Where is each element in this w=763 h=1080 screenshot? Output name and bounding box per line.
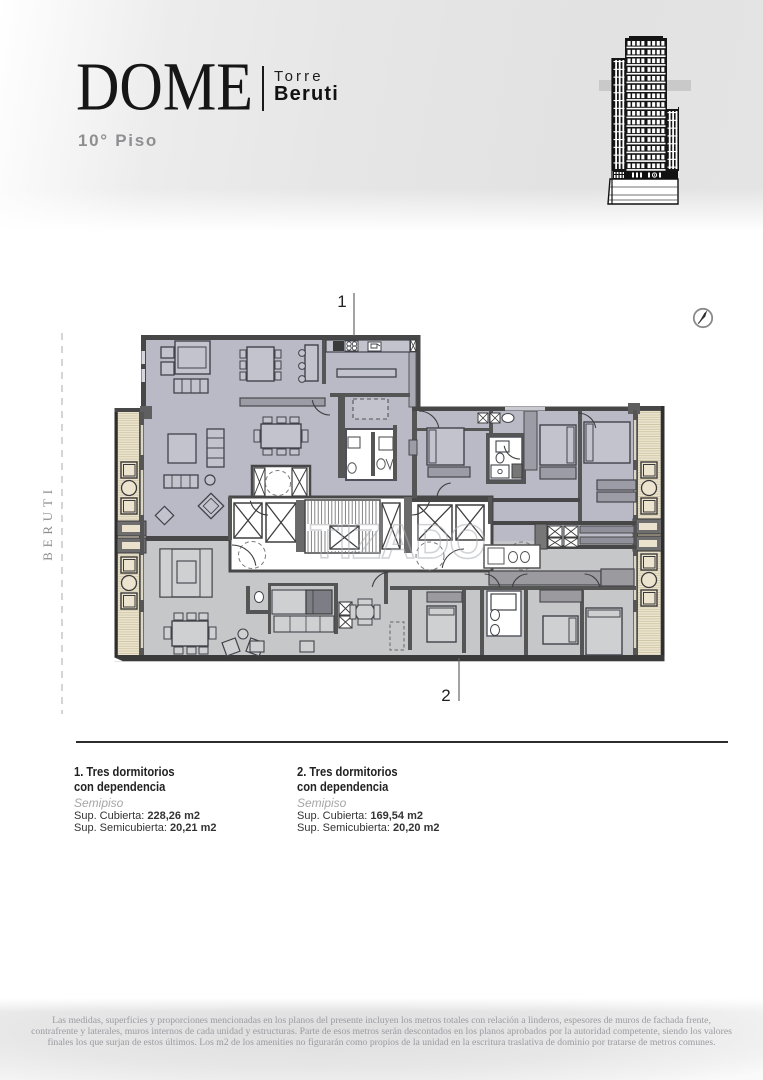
- svg-text:TIZADO: TIZADO: [310, 516, 486, 569]
- svg-text:BERUTI: BERUTI: [40, 485, 55, 561]
- svg-text:2: 2: [441, 686, 450, 705]
- svg-text:1: 1: [337, 292, 346, 311]
